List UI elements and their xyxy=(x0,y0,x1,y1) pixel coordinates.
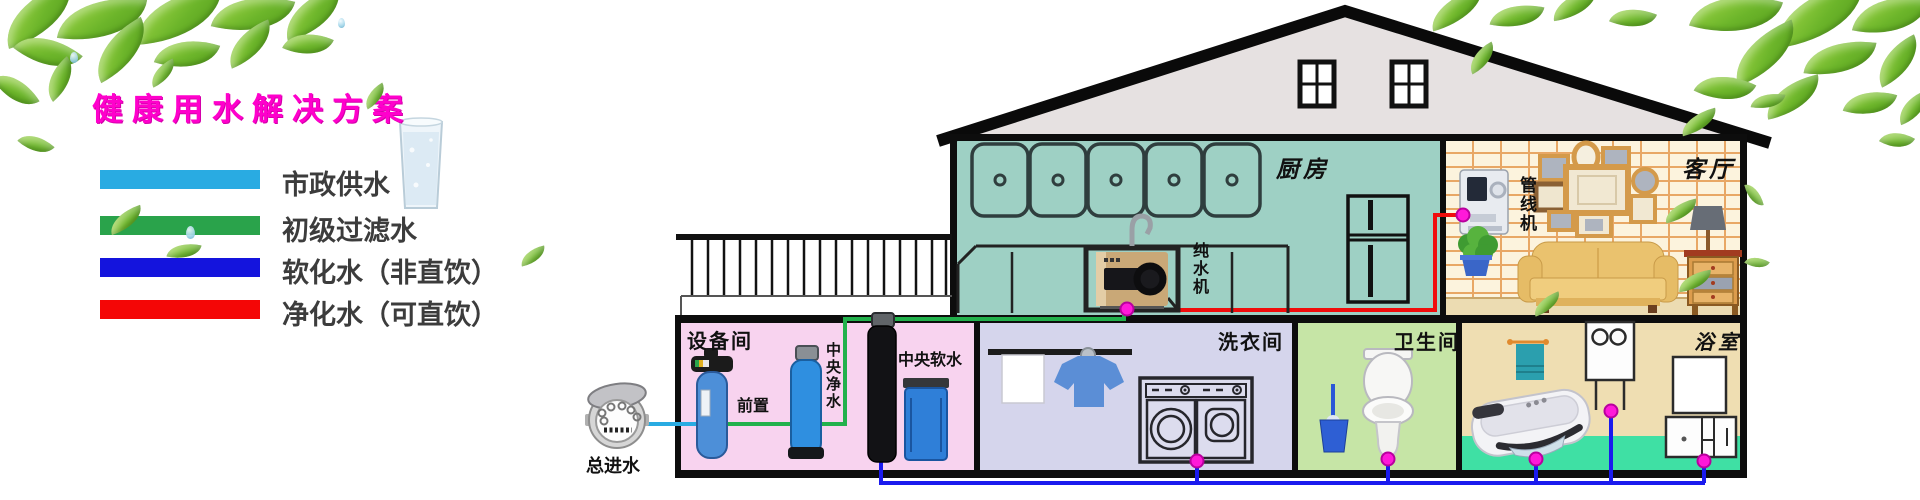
legend-swatch-filtered xyxy=(100,216,260,235)
water-glass xyxy=(400,118,442,208)
legend-label-municipal: 市政供水 xyxy=(282,163,390,202)
sofa xyxy=(1518,242,1678,313)
joint-heater xyxy=(1605,405,1618,418)
joint-bathtub xyxy=(1530,453,1543,466)
toilet xyxy=(1363,349,1413,456)
bath-label: 浴室 xyxy=(1694,326,1742,355)
legend-label-purified: 净化水（可直饮） xyxy=(282,293,498,332)
vanity-cabinet xyxy=(1666,417,1736,457)
attic-window-left xyxy=(1300,62,1334,106)
roof-gable xyxy=(948,13,1763,141)
main-inlet-label: 总进水 xyxy=(586,452,640,478)
hanging-sheet xyxy=(1002,355,1044,403)
joint-toilet xyxy=(1382,453,1395,466)
central-purifier-label: 中央净水 xyxy=(822,342,843,414)
towel xyxy=(1507,339,1549,380)
page-title: 健康用水解决方案 xyxy=(92,84,412,129)
joint-pipeline-machine xyxy=(1457,209,1470,222)
pipeline-machine xyxy=(1460,170,1508,234)
ground-line xyxy=(675,470,1747,478)
legend-swatch-municipal xyxy=(100,170,260,189)
right-wall xyxy=(1740,134,1747,478)
laundry-toilet-wall xyxy=(1292,323,1298,478)
floor-lamp xyxy=(1690,206,1726,252)
kitchen-living-wall xyxy=(1440,140,1446,323)
joint-vanity xyxy=(1698,455,1711,468)
joint-washer xyxy=(1191,455,1204,468)
kitchen-faucet xyxy=(1132,216,1150,246)
attic-floor-line xyxy=(950,134,1747,141)
toilet-brush xyxy=(1320,384,1348,452)
kitchen-label: 厨房 xyxy=(1276,150,1330,184)
brine-tank xyxy=(903,378,949,460)
central-softener-tank xyxy=(868,313,896,462)
joint-pure-water-machine xyxy=(1121,303,1134,316)
second-floor-left-wall xyxy=(950,134,957,323)
equipment-label: 设备间 xyxy=(687,325,753,354)
mirror xyxy=(1673,357,1726,413)
t-shirt xyxy=(1054,356,1124,407)
banner: 健康用水解决方案 市政供水 初级过滤水 软化水（非直饮） 净化水（可直饮） 厨房… xyxy=(0,0,1920,500)
picture-frames xyxy=(1536,143,1657,236)
laundry-label: 洗衣间 xyxy=(1218,326,1284,355)
water-meter xyxy=(585,380,649,448)
legend-swatch-softened xyxy=(100,258,260,277)
legend-label-softened: 软化水（非直饮） xyxy=(282,251,498,290)
attic-window-right xyxy=(1392,62,1426,106)
central-purifier-tank xyxy=(788,346,824,459)
pure-water-machine xyxy=(1096,252,1168,309)
equipment-laundry-wall xyxy=(974,315,980,478)
pipeline-machine-label: 管线机 xyxy=(1514,176,1539,234)
washer-dryer xyxy=(1140,378,1252,462)
prefilter-label: 前置 xyxy=(737,392,769,416)
laundry-items xyxy=(988,348,1132,407)
toilet-label: 卫生间 xyxy=(1394,326,1460,355)
side-table xyxy=(1684,250,1742,315)
fridge xyxy=(1348,196,1408,302)
house-diagram xyxy=(0,0,1920,500)
water-heater xyxy=(1586,322,1634,410)
pure-water-machine-label: 纯水机 xyxy=(1186,242,1210,308)
kitchen-cabinets-upper xyxy=(972,144,1260,216)
deck-fence xyxy=(676,234,952,315)
clothes-rail xyxy=(988,349,1132,355)
equipment-left-wall xyxy=(675,315,681,478)
central-softener-label: 中央软水 xyxy=(898,346,962,370)
prefilter-unit xyxy=(691,348,733,458)
living-label: 客厅 xyxy=(1682,150,1736,184)
legend-swatch-purified xyxy=(100,300,260,319)
legend-label-filtered: 初级过滤水 xyxy=(282,209,417,248)
